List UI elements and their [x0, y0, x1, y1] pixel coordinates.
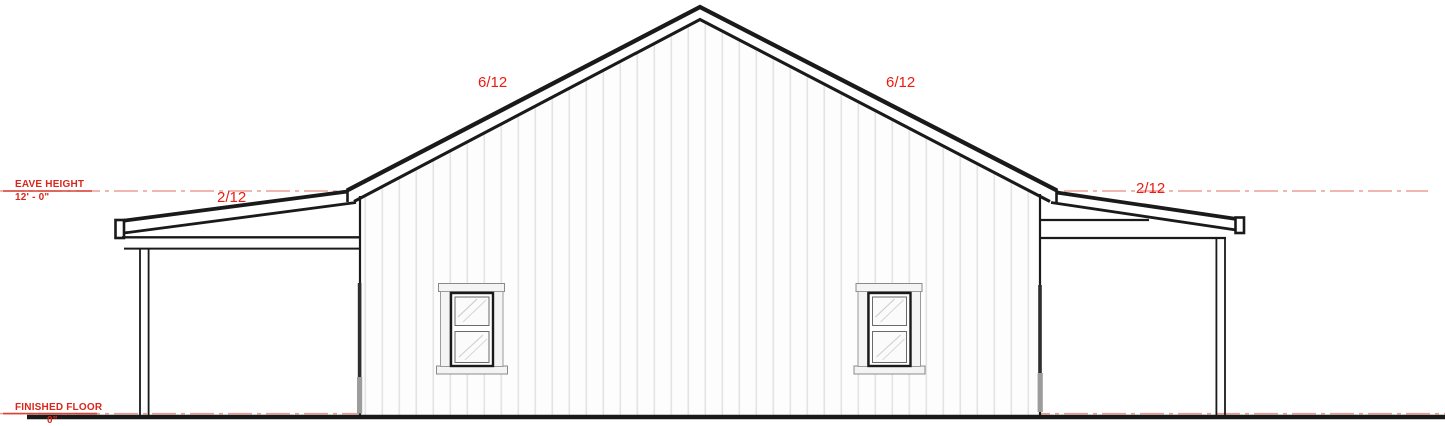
pitch-label-left-shed-roof: 2/12	[217, 190, 246, 205]
pitch-label-right-shed-roof: 2/12	[1136, 181, 1165, 196]
finished-floor-label: FINISHED FLOOR	[15, 403, 102, 413]
pitch-label-main-roof-right: 6/12	[886, 75, 915, 90]
finished-floor-value: 0"	[47, 416, 58, 426]
window-right	[854, 284, 925, 375]
right-downspout	[1038, 285, 1043, 412]
left-porch-post	[140, 249, 149, 416]
eave-height-value: 12' - 0"	[15, 193, 49, 203]
building-elevation-graphic	[0, 0, 1445, 426]
right-fascia	[1236, 218, 1245, 234]
elevation-drawing: EAVE HEIGHT 12' - 0" FINISHED FLOOR 0" 6…	[0, 0, 1445, 426]
right-porch-post	[1216, 238, 1225, 416]
window-left	[437, 284, 508, 375]
left-fascia	[116, 220, 125, 238]
pitch-label-main-roof-left: 6/12	[478, 75, 507, 90]
eave-height-label: EAVE HEIGHT	[15, 180, 84, 190]
